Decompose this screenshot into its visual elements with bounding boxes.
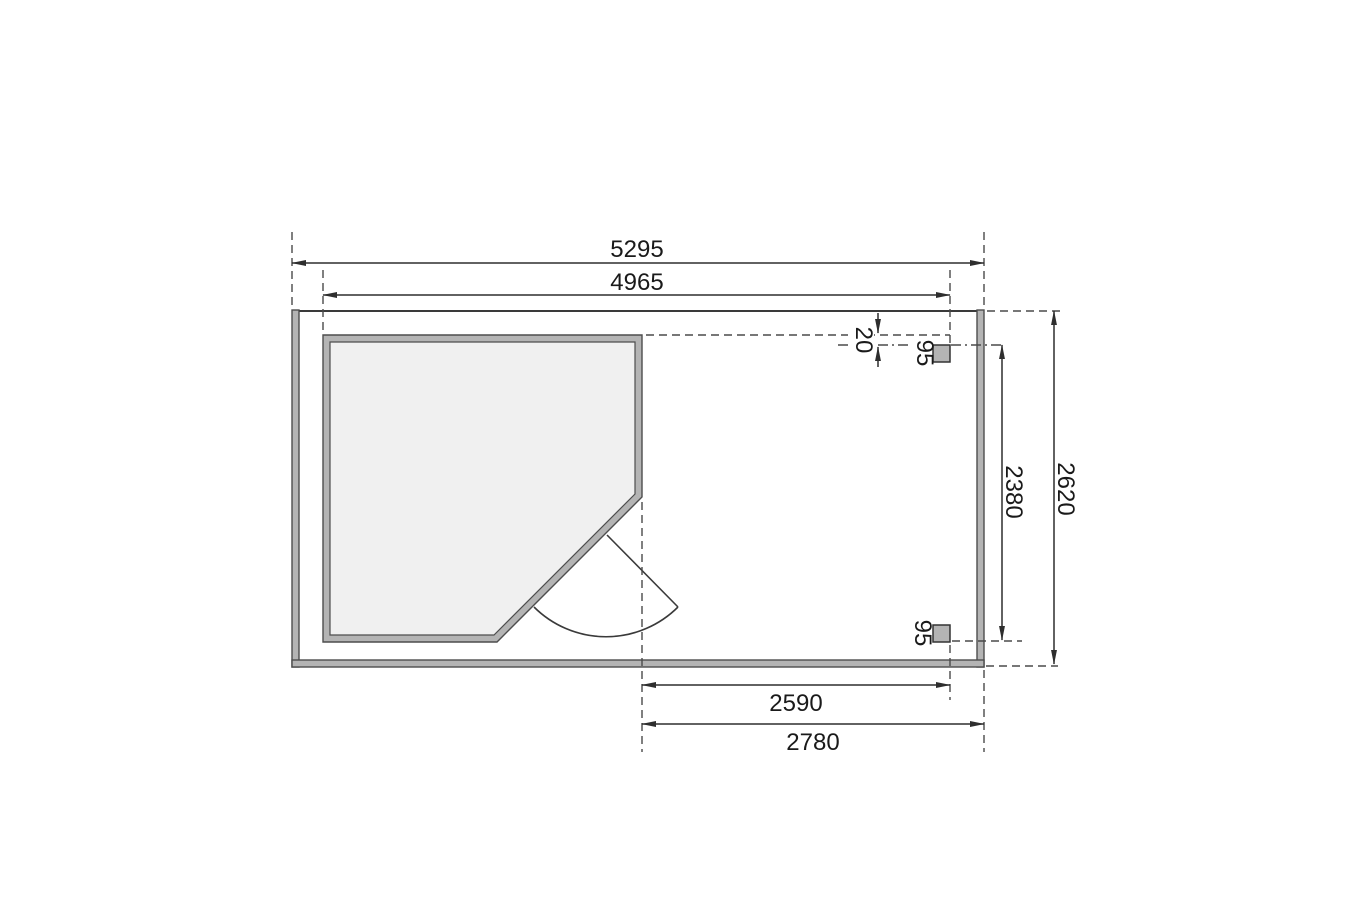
dim-label-posts-span: 2380 xyxy=(1000,465,1027,518)
dim-label-overall-depth: 2620 xyxy=(1052,462,1079,515)
dim-label-wall-outer-width: 4965 xyxy=(610,269,663,296)
dim-label-post-top: 95 xyxy=(911,340,938,367)
dim-label-annex-outer: 2780 xyxy=(786,729,839,756)
left-wall xyxy=(292,310,299,667)
bottom-wall xyxy=(292,660,984,667)
dim-label-overall-width: 5295 xyxy=(610,236,663,263)
dim-label-overhang-gap: 20 xyxy=(850,327,877,354)
dim-label-post-bottom: 95 xyxy=(909,620,936,647)
floor-plan-page: 5295 4965 2590 2780 20 95 95 2380 2620 xyxy=(0,0,1360,907)
door-swing-arc xyxy=(534,607,678,637)
dimension-labels: 5295 4965 2590 2780 20 95 95 2380 2620 xyxy=(610,236,1079,756)
right-wall xyxy=(977,310,984,667)
room-interior xyxy=(330,342,635,635)
corner-room xyxy=(323,335,642,642)
floor-plan-canvas: 5295 4965 2590 2780 20 95 95 2380 2620 xyxy=(0,0,1360,907)
dim-label-annex-inner: 2590 xyxy=(769,690,822,717)
